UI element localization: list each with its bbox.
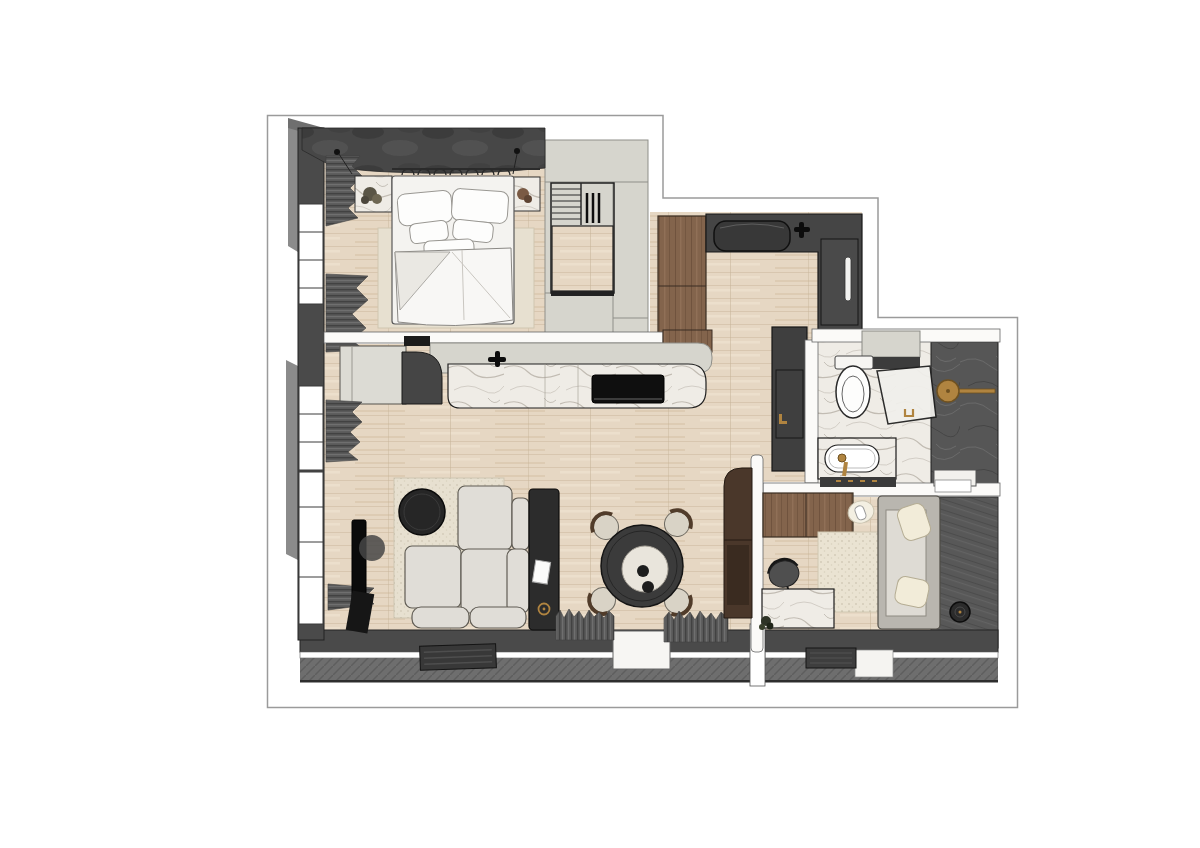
coffee-table <box>399 489 445 535</box>
doormat <box>806 648 856 668</box>
living-walnut-wardrobe <box>724 468 752 618</box>
kitchen-sink <box>714 221 790 251</box>
window-bedroom <box>299 204 323 304</box>
magazine <box>532 560 550 584</box>
window-living-lower <box>299 472 323 624</box>
hall-wardrobe <box>772 327 807 471</box>
sliding-door-opening <box>855 650 893 677</box>
vanity <box>818 438 896 479</box>
tv-stand <box>359 535 385 561</box>
wall-shelf <box>935 480 971 492</box>
stair-landing <box>552 226 613 291</box>
fridge-handle <box>845 257 851 301</box>
study-wardrobe <box>763 493 853 537</box>
floor-plan <box>0 0 1200 848</box>
double-bed <box>392 176 514 326</box>
bathroom-shelf <box>862 331 920 357</box>
study-sofa <box>878 496 940 629</box>
shower-floor <box>931 342 998 488</box>
sofa-console <box>529 489 559 630</box>
nightstand-left <box>355 176 392 212</box>
robot-vacuum <box>950 602 970 622</box>
vanity-faucet <box>838 454 846 462</box>
sliding-door-opening <box>613 631 670 669</box>
study-desk <box>762 589 834 628</box>
window-living-upper <box>299 386 323 470</box>
fridge-door <box>821 239 858 325</box>
shower-glass-door <box>877 366 936 424</box>
balcony <box>300 624 998 686</box>
doormat <box>420 644 497 671</box>
floor-plan-canvas <box>0 0 1200 848</box>
island-marble-counter <box>448 364 706 408</box>
study-dark-floor <box>931 497 998 648</box>
bed-duvet <box>395 248 513 326</box>
